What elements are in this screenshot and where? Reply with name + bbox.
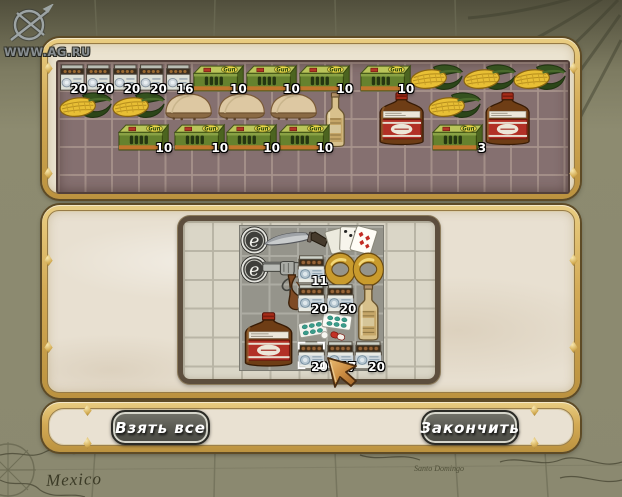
pills[interactable] (297, 312, 354, 341)
ammo-box-green[interactable]: Gun 10 (278, 123, 331, 151)
svg-text:Gun: Gun (309, 126, 321, 132)
bread[interactable] (267, 92, 320, 120)
corn[interactable] (463, 64, 516, 92)
bottle-whiskey[interactable] (240, 312, 297, 370)
ammo-box-white[interactable]: 20 (297, 341, 326, 370)
ammo-box-white[interactable]: 11 (297, 255, 326, 284)
corn[interactable] (410, 64, 463, 92)
cartridge-pack[interactable]: 20 (85, 64, 112, 92)
bottle-whiskey[interactable] (375, 92, 428, 148)
item-count: 10 (283, 82, 300, 96)
map-label-mexico: Mexico (46, 469, 103, 491)
corn[interactable] (428, 92, 481, 120)
cartridge-pack[interactable]: 20 (112, 64, 139, 92)
svg-text:Gun: Gun (390, 67, 402, 73)
knife-icon (263, 226, 329, 255)
item-count: 3 (478, 141, 486, 155)
gold-ring[interactable] (354, 255, 383, 284)
corn-icon (463, 64, 516, 92)
ammo-box-green[interactable]: Gun 10 (117, 123, 170, 151)
bottle-whiskey-icon (375, 92, 428, 148)
item-count: 20 (97, 82, 114, 96)
watermark-text: WWW.AG.RU (4, 45, 91, 59)
bottle-whiskey[interactable] (481, 92, 534, 148)
item-count: 10 (263, 141, 280, 155)
item-count: 16 (177, 82, 194, 96)
item-count: 10 (316, 141, 333, 155)
selection-brackets (297, 341, 326, 370)
ammo-box-green[interactable]: Gun 10 (192, 64, 245, 92)
corn-icon (59, 92, 112, 120)
cartridge-pack[interactable]: 16 (165, 64, 192, 92)
bottle-whiskey-icon (481, 92, 534, 148)
ammo-box-green[interactable]: Gun 3 (431, 123, 484, 151)
top-panel: 20 20 20 20 16 Gun 10 Gun (42, 38, 580, 199)
buttons-bar: Взять все Закончить (42, 402, 580, 452)
corn-icon (513, 64, 566, 92)
ammo-box-green-icon: Gun (431, 123, 484, 151)
loot-container[interactable]: e e 11 20 (178, 216, 440, 384)
bread[interactable] (162, 92, 215, 120)
svg-text:Gun: Gun (462, 126, 474, 132)
bread-icon (162, 92, 215, 120)
svg-text:Gun: Gun (148, 126, 160, 132)
gold-ring[interactable] (326, 255, 355, 284)
ammo-box-white[interactable]: 20 (326, 284, 355, 313)
item-count: 20 (150, 82, 167, 96)
item-count: 10 (398, 82, 415, 96)
item-count: 20 (368, 360, 385, 374)
ammo-box-green[interactable]: Gun 10 (225, 123, 278, 151)
pills-icon (297, 312, 354, 341)
arrow-cursor (325, 355, 359, 393)
gold-ring-icon (326, 255, 355, 284)
item-count: 20 (340, 302, 357, 316)
svg-text:e: e (249, 260, 259, 280)
item-count: 10 (156, 141, 173, 155)
inventory-items-layer: 20 20 20 20 16 Gun 10 Gun (58, 62, 568, 192)
item-count: 10 (211, 141, 228, 155)
ammo-box-green[interactable]: Gun 10 (359, 64, 412, 92)
item-count: 11 (311, 274, 328, 288)
svg-text:Gun: Gun (276, 67, 288, 73)
item-count: 20 (124, 82, 141, 96)
compass-rose-drawing (0, 442, 36, 497)
item-count: 20 (311, 302, 328, 316)
inventory-grid[interactable]: 20 20 20 20 16 Gun 10 Gun (56, 60, 570, 194)
bottle-whiskey-icon (240, 312, 297, 370)
corn-icon (112, 92, 165, 120)
loot-items-layer: e e 11 20 (240, 226, 383, 370)
compass-icon (4, 4, 60, 50)
gold-ring-icon (354, 255, 383, 284)
take-all-button[interactable]: Взять все (111, 410, 210, 445)
map-label-santo-domingo: Santo Domingo (414, 464, 464, 473)
item-count: 20 (70, 82, 87, 96)
svg-text:Gun: Gun (256, 126, 268, 132)
bread-icon (267, 92, 320, 120)
corn-icon (428, 92, 481, 120)
corn-icon (410, 64, 463, 92)
ammo-box-green[interactable]: Gun 10 (298, 64, 351, 92)
playing-cards-icon (322, 226, 383, 255)
ammo-box-green[interactable]: Gun 10 (245, 64, 298, 92)
playing-cards[interactable] (322, 226, 383, 255)
svg-text:Gun: Gun (329, 67, 341, 73)
corn[interactable] (112, 92, 165, 120)
bottle-tall[interactable] (354, 284, 383, 342)
svg-text:e: e (249, 232, 259, 252)
cartridge-pack[interactable]: 20 (138, 64, 165, 92)
agru-watermark: WWW.AG.RU (4, 4, 60, 54)
item-count: 10 (336, 82, 353, 96)
svg-text:Gun: Gun (204, 126, 216, 132)
bread[interactable] (215, 92, 268, 120)
finish-button[interactable]: Закончить (421, 410, 519, 445)
loot-grid[interactable]: e e 11 20 (239, 225, 384, 371)
knife[interactable] (263, 226, 329, 255)
svg-text:Gun: Gun (223, 67, 235, 73)
item-count: 10 (230, 82, 247, 96)
bread-icon (215, 92, 268, 120)
bottle-tall-icon (354, 284, 383, 342)
corn[interactable] (59, 92, 112, 120)
corn[interactable] (513, 64, 566, 92)
ammo-box-green[interactable]: Gun 10 (173, 123, 226, 151)
cartridge-pack[interactable]: 20 (59, 64, 86, 92)
loot-panel: e e 11 20 (42, 205, 580, 398)
